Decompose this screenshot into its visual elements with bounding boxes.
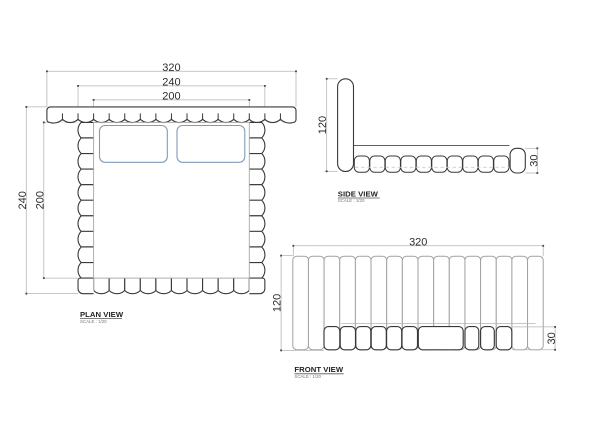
svg-text:SCALE : 1/20: SCALE : 1/20	[294, 374, 321, 379]
svg-text:SCALE : 1/20: SCALE : 1/20	[80, 319, 107, 324]
svg-text:120: 120	[272, 294, 284, 312]
svg-text:200: 200	[35, 191, 47, 209]
svg-text:PLAN VIEW: PLAN VIEW	[80, 310, 124, 319]
svg-text:120: 120	[317, 116, 329, 134]
svg-text:30: 30	[546, 332, 558, 344]
svg-text:320: 320	[162, 62, 180, 74]
svg-text:320: 320	[409, 236, 427, 248]
svg-text:200: 200	[162, 91, 180, 103]
svg-text:30: 30	[528, 155, 540, 167]
svg-text:240: 240	[17, 191, 29, 209]
svg-text:SCALE : 1/20: SCALE : 1/20	[338, 198, 365, 203]
svg-text:SIDE VIEW: SIDE VIEW	[338, 189, 379, 198]
svg-text:FRONT VIEW: FRONT VIEW	[294, 365, 343, 374]
svg-text:240: 240	[162, 77, 180, 89]
